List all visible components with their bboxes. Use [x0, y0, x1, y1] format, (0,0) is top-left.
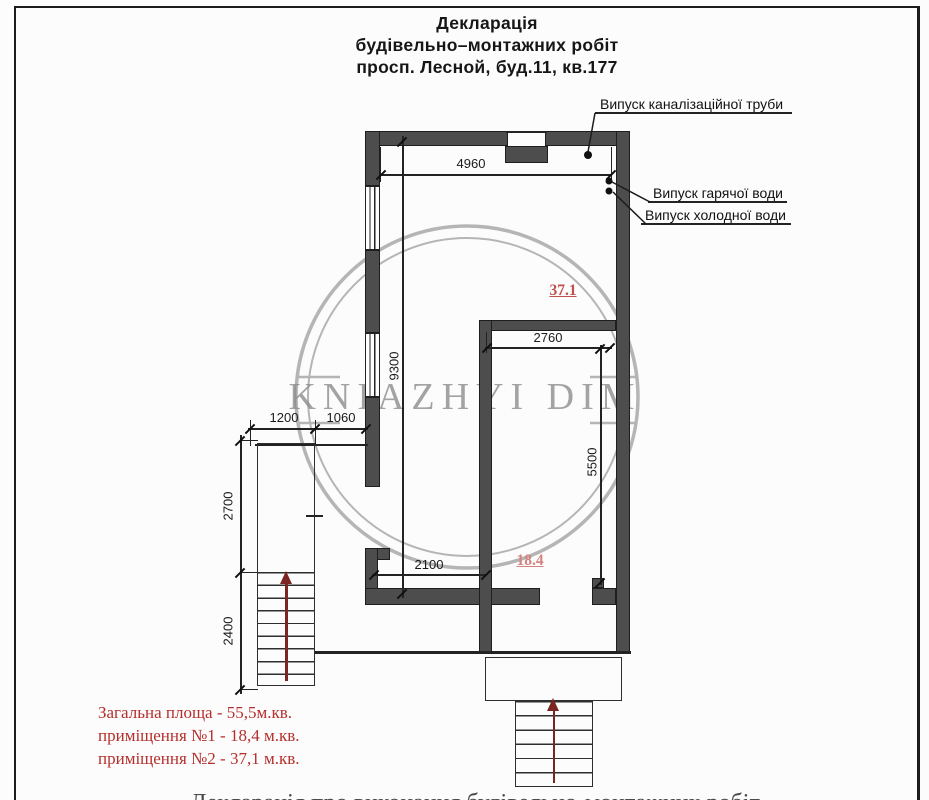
dim-label-2700: 2700 — [221, 492, 236, 521]
title-line-3: просп. Лесной, буд.11, кв.177 — [227, 57, 747, 78]
dim-line-2760 — [485, 347, 612, 349]
ext-line — [611, 147, 612, 182]
wall-top-left — [365, 131, 508, 146]
floor-plan-sheet: Декларація будівельно–монтажних робіт пр… — [0, 0, 929, 800]
dim-line-4960 — [380, 174, 612, 176]
legend-room1-area: приміщення №1 - 18,4 м.кв. — [98, 726, 300, 746]
wall-bottom-jamb — [592, 588, 616, 605]
legend-total-area: Загальна площа - 55,5м.кв. — [98, 703, 292, 723]
frame-line-right — [917, 6, 920, 800]
bottom-partial-text: Декларація про виконання будівельно-монт… — [190, 790, 760, 800]
stair-direction-arrow-shaft — [285, 582, 288, 681]
dim-line-1200-1060 — [248, 428, 368, 430]
ext-line — [240, 572, 258, 573]
dim-label-1060: 1060 — [327, 410, 356, 425]
dim-label-1200: 1200 — [270, 410, 299, 425]
legend-room2-area: приміщення №2 - 37,1 м.кв. — [98, 749, 300, 769]
room-label-18-4: 18.4 — [516, 552, 543, 570]
dim-label-2100: 2100 — [415, 557, 444, 572]
annotation-hot-water-underline — [648, 201, 787, 203]
wall-top-gap-edge — [506, 131, 547, 133]
wall-left-seg2 — [365, 250, 380, 333]
wall-right — [616, 131, 630, 654]
frame-line-left — [14, 6, 16, 800]
sewer-outlet-dot — [584, 151, 592, 159]
frame-line-top — [14, 6, 918, 8]
window-left-upper — [365, 186, 380, 250]
annotation-sewer-underline — [595, 112, 792, 114]
dim-label-4960: 4960 — [457, 156, 486, 171]
annotation-hot-water-label: Випуск гарячої води — [653, 185, 783, 201]
entry-landing — [485, 657, 622, 701]
room-label-37-1: 37.1 — [549, 282, 576, 300]
annotation-cold-water-label: Випуск холодної води — [645, 207, 786, 223]
annotation-sewer-label: Випуск каналізаційної труби — [600, 96, 783, 112]
dim-label-9300: 9300 — [387, 352, 402, 381]
entry-stair-arrow-shaft — [553, 709, 556, 783]
dim-label-2760: 2760 — [534, 330, 563, 345]
title-line-2: будівельно–монтажних робіт — [227, 35, 747, 56]
wall-vent-block — [505, 146, 548, 163]
ext-line — [240, 689, 258, 690]
dim-line-2700-2400 — [240, 435, 242, 694]
annotation-cold-water-underline — [641, 223, 791, 225]
dim-label-5500: 5500 — [585, 448, 600, 477]
slab-edge-line — [315, 651, 631, 654]
dim-line-2100 — [372, 574, 487, 576]
dim-label-2400: 2400 — [221, 617, 236, 646]
ext-line — [250, 420, 251, 446]
cold-water-dot — [606, 188, 613, 195]
wall-bottom-band — [365, 588, 540, 605]
wall-left-seg3 — [365, 397, 380, 487]
wall-inner-left — [479, 320, 492, 653]
ext-line — [315, 420, 316, 446]
dim-line-5500 — [600, 345, 602, 585]
title-line-1: Декларація — [227, 13, 747, 34]
ext-line — [240, 440, 258, 441]
dim-line-9300 — [402, 136, 404, 598]
window-left-lower — [365, 333, 380, 397]
